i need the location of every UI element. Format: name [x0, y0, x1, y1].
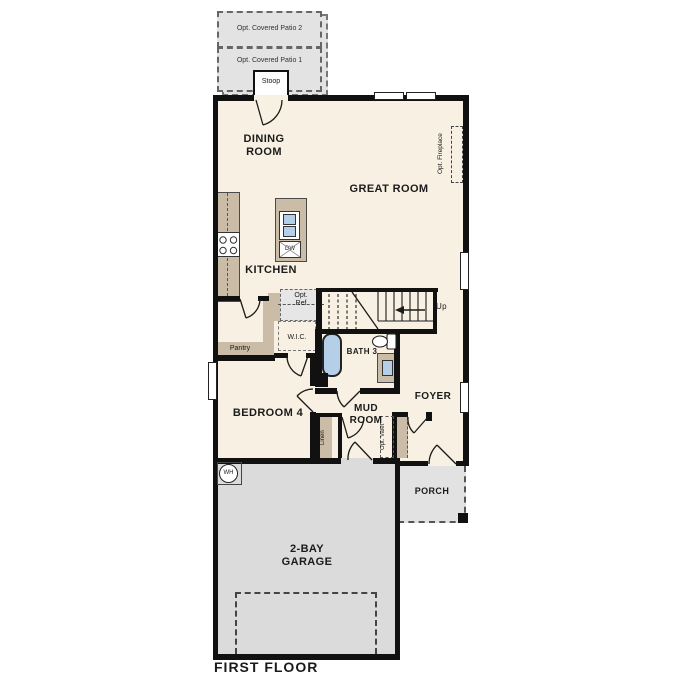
dishwasher-label: DW: [279, 246, 301, 253]
water-heater-label: WH: [219, 470, 238, 477]
vanity-sink: [382, 360, 393, 376]
ref-nook-stub: [268, 293, 280, 321]
bath-left-wall: [315, 329, 322, 375]
linen-label: Linen: [320, 417, 332, 458]
window-right-greatroom: [460, 252, 469, 290]
sink-basin-bottom: [283, 226, 296, 237]
garage-label: 2-BAY GARAGE: [268, 543, 346, 568]
stairs-bottom-wall: [316, 329, 437, 334]
opt-covered-patio-1-label: Opt. Covered Patio 1: [222, 57, 317, 65]
opt-ref-label: Opt. Ref: [289, 292, 313, 308]
stairs-left-wall: [316, 288, 322, 334]
closet-door-stub: [426, 412, 432, 421]
bedroom4-top-wall: [213, 355, 275, 361]
window-top-1: [374, 92, 404, 100]
pantry-label: Pantry: [218, 345, 262, 353]
window-top-2: [406, 92, 436, 100]
garage-right-wall: [395, 458, 400, 660]
bath-right-wall: [394, 329, 400, 394]
opt-covered-patio-2-label: Opt. Covered Patio 2: [222, 25, 317, 33]
tub-ledge: [315, 373, 328, 387]
dining-room-label: DINING ROOM: [224, 133, 304, 158]
bath3-label: BATH 3: [336, 347, 388, 356]
opt-fireplace-box: [451, 126, 463, 183]
kitchen-label: KITCHEN: [231, 264, 311, 277]
stairs-top-wall: [316, 288, 438, 292]
stoop-label: Stoop: [253, 78, 289, 86]
pantry-top-wall-right: [258, 296, 269, 301]
porch-label: PORCH: [404, 486, 460, 496]
first-floor-title: FIRST FLOOR: [214, 659, 414, 675]
sink-basin-top: [283, 214, 296, 225]
mudroom-label: MUD ROOM: [340, 403, 392, 426]
garage-left-wall: [213, 458, 218, 660]
foyer-label: FOYER: [404, 391, 462, 403]
wic-label: W.I.C.: [279, 334, 315, 342]
wic-bottom-wall-left: [274, 353, 288, 358]
bedroom4-label: BEDROOM 4: [222, 407, 314, 420]
bath-bottom-wall-left: [315, 388, 337, 394]
exterior-left-wall: [213, 95, 218, 463]
coat-closet-shelf: [397, 417, 408, 458]
garage-door-outline: [235, 592, 377, 654]
stoop-door-opening: [254, 95, 288, 101]
floor-plan: Opt. Covered Patio 2 Opt. Covered Patio …: [0, 0, 687, 687]
great-room-label: GREAT ROOM: [343, 183, 435, 196]
porch-top-wall-left: [398, 461, 428, 466]
range: [216, 232, 240, 257]
up-label: Up: [436, 302, 458, 311]
opt-fireplace-label: Opt. Fireplace: [438, 123, 449, 185]
porch-post: [458, 513, 468, 523]
window-left-bedroom4: [208, 362, 217, 400]
